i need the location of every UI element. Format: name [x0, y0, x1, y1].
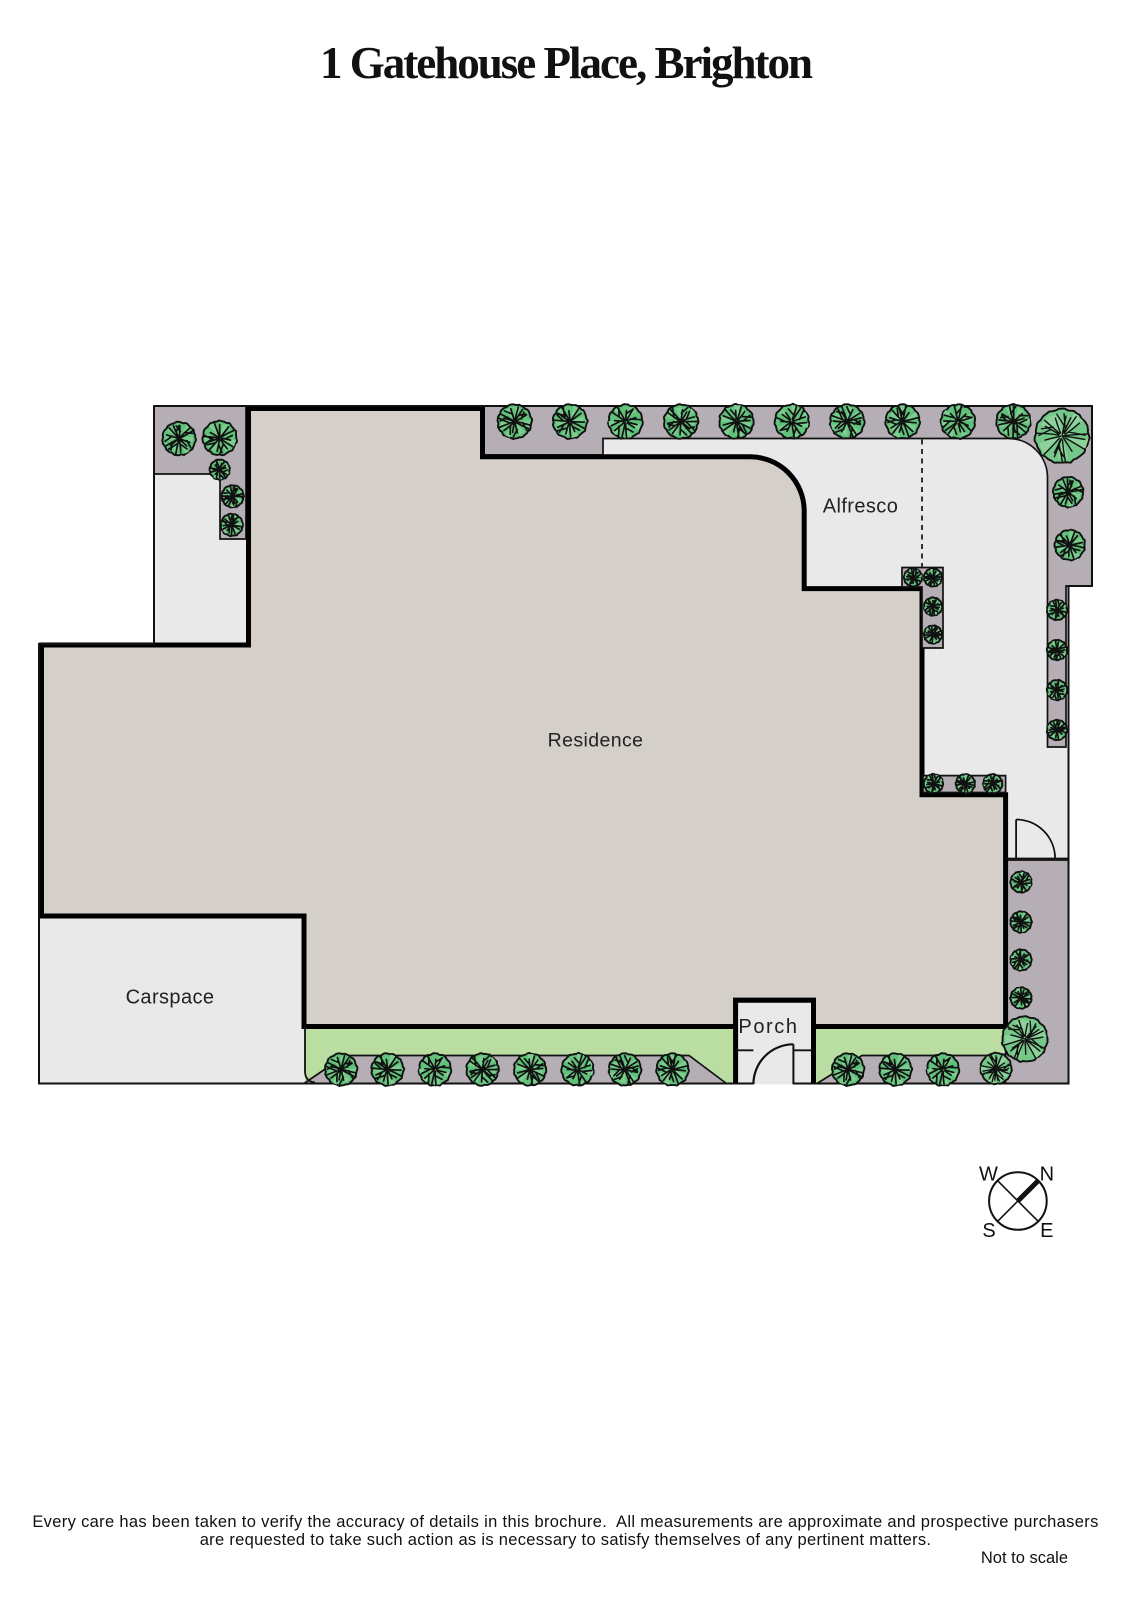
svg-text:N: N	[1040, 1164, 1054, 1186]
svg-text:Carspace: Carspace	[126, 987, 215, 1009]
svg-text:W: W	[979, 1164, 998, 1186]
svg-text:E: E	[1040, 1220, 1053, 1242]
svg-text:Residence: Residence	[548, 730, 644, 752]
svg-text:Alfresco: Alfresco	[823, 496, 898, 518]
svg-text:S: S	[982, 1220, 995, 1242]
svg-text:Porch: Porch	[738, 1016, 798, 1038]
